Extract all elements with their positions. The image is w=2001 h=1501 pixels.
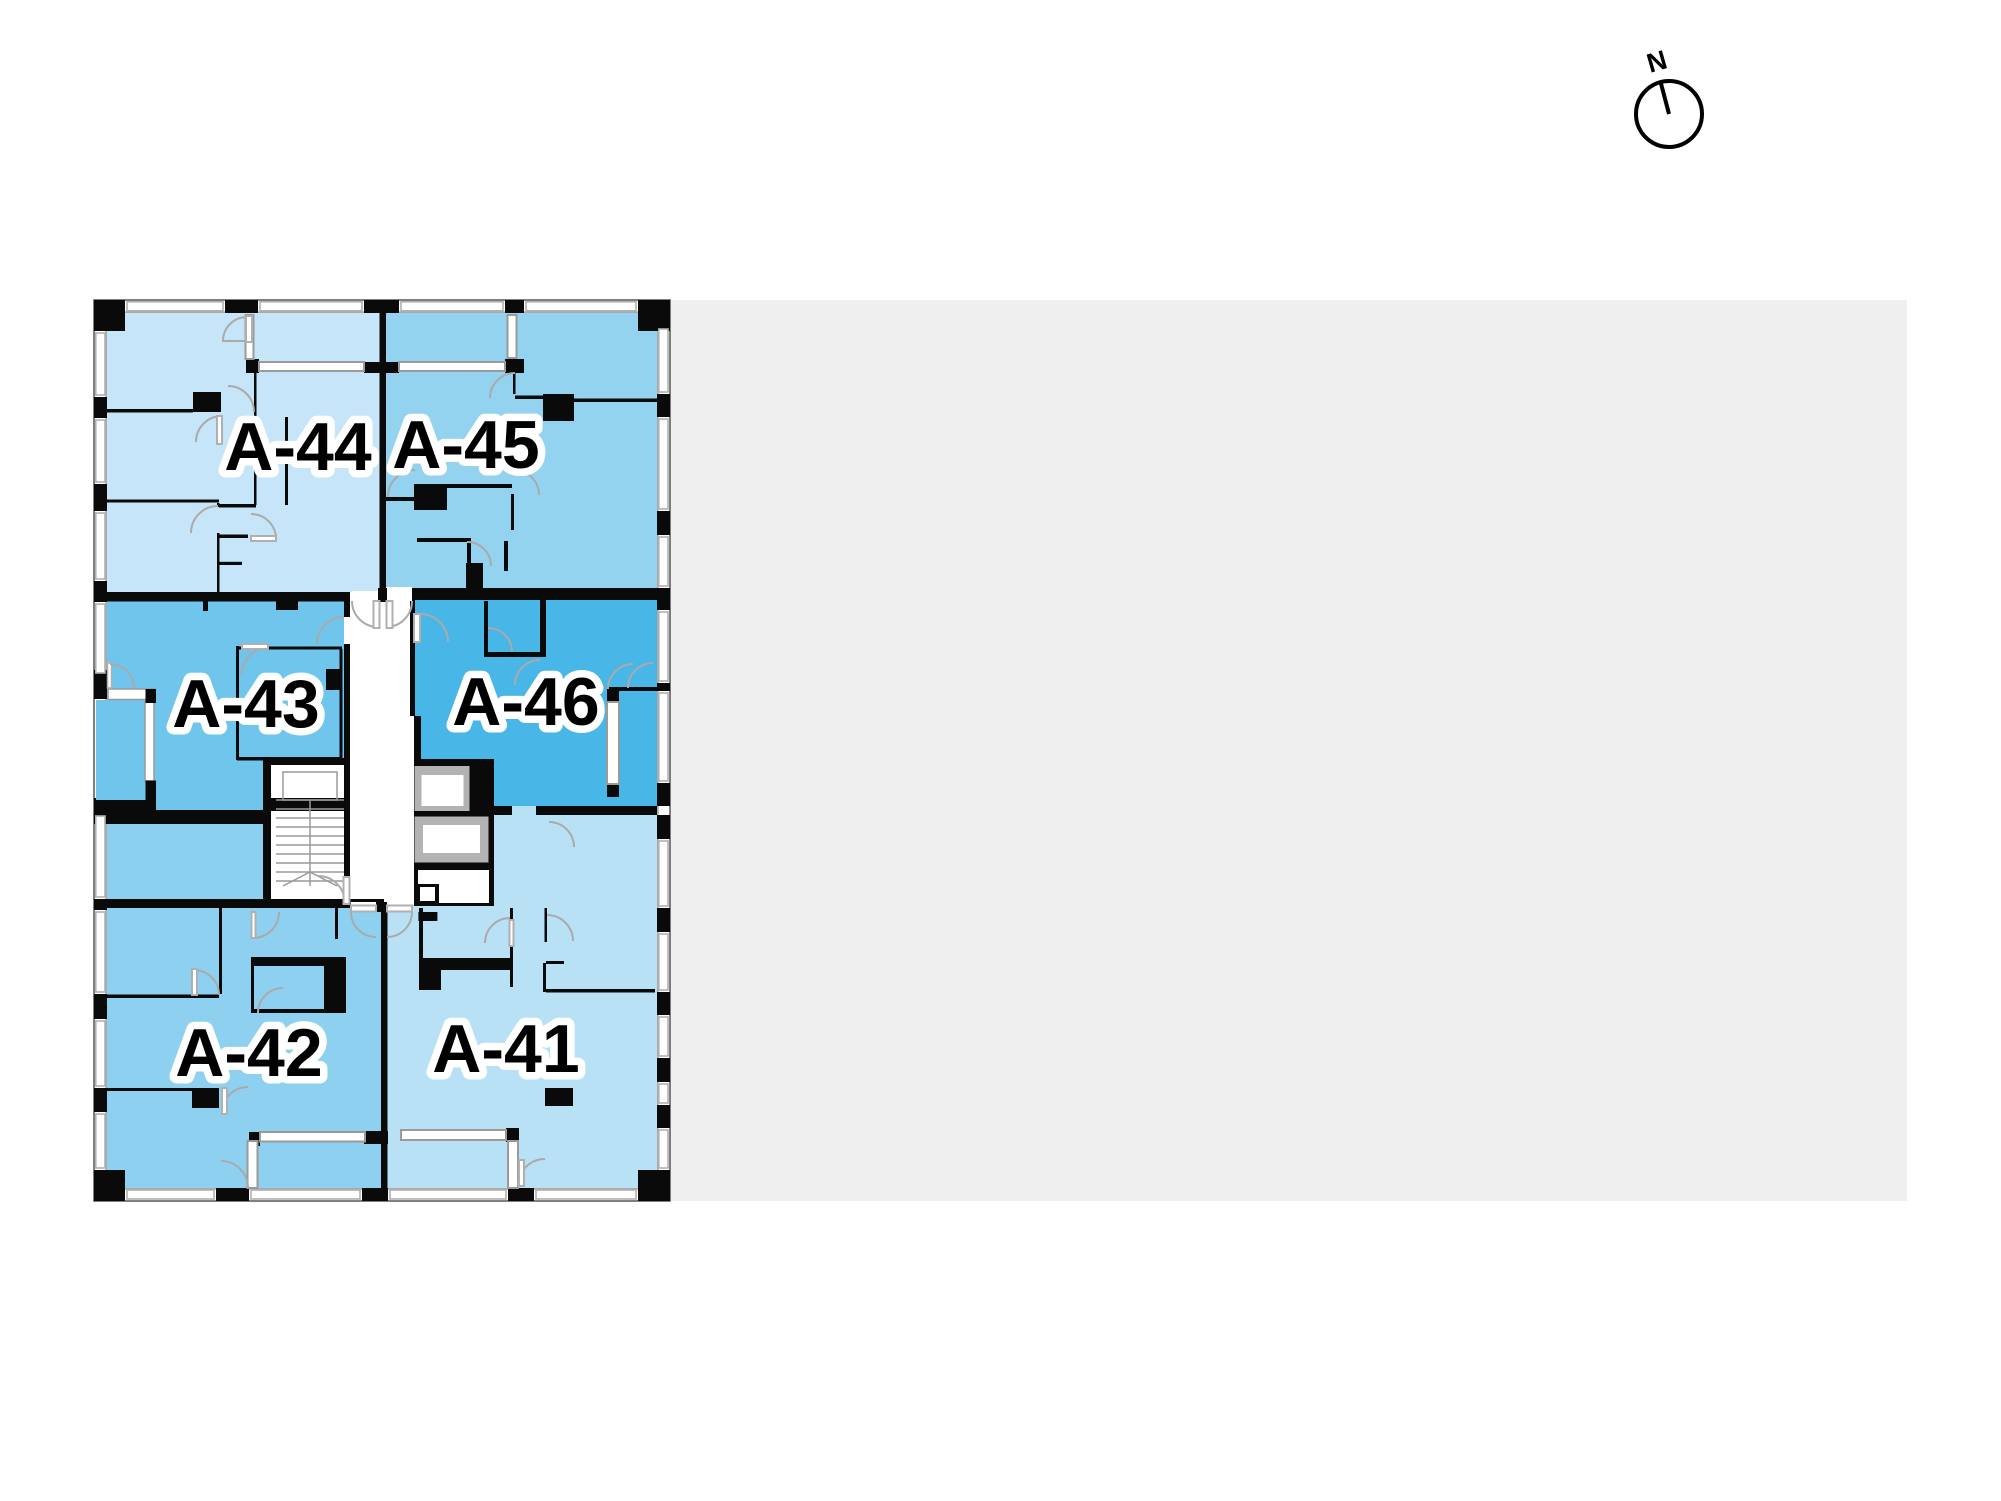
svg-text:A-46: A-46	[452, 664, 599, 740]
svg-text:A-45: A-45	[392, 407, 539, 483]
svg-text:A-41: A-41	[432, 1011, 579, 1087]
svg-text:A-43: A-43	[172, 666, 319, 742]
svg-text:A-44: A-44	[224, 409, 372, 485]
svg-text:A-42: A-42	[175, 1015, 322, 1091]
